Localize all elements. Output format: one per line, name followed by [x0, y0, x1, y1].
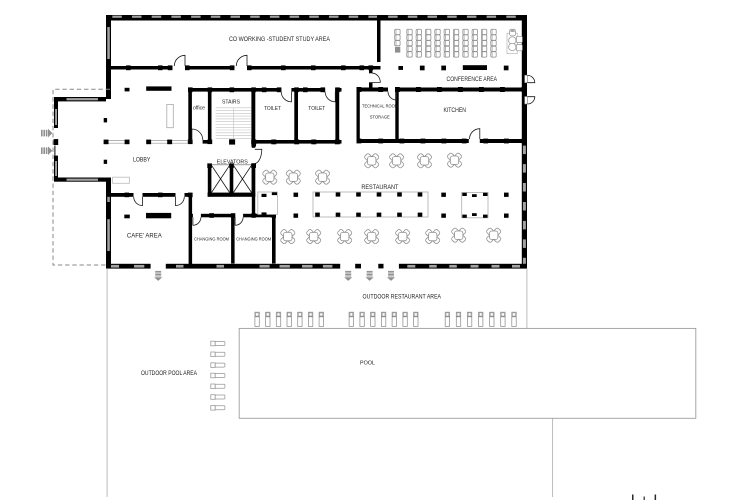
svg-text:CONFERENCE AREA: CONFERENCE AREA	[447, 76, 498, 83]
svg-text:OUTDOOR POOL AREA: OUTDOOR POOL AREA	[141, 371, 197, 377]
svg-text:CAFE' AREA: CAFE' AREA	[127, 234, 162, 240]
svg-text:TOILET: TOILET	[308, 106, 326, 112]
svg-text:RESTAURANT: RESTAURANT	[361, 184, 398, 191]
svg-text:TECHNICAL ROOM: TECHNICAL ROOM	[362, 104, 398, 110]
svg-text:POOL: POOL	[360, 360, 375, 366]
svg-text:LOBBY: LOBBY	[133, 158, 151, 164]
svg-text:CHANGING ROOM: CHANGING ROOM	[236, 237, 271, 242]
svg-text:CO WORKING -STUDENT STUDY AREA: CO WORKING -STUDENT STUDY AREA	[229, 36, 331, 43]
svg-text:ELEVATORS: ELEVATORS	[217, 159, 248, 165]
svg-text:KITCHEN: KITCHEN	[443, 108, 466, 114]
svg-text:STAIRS: STAIRS	[222, 99, 240, 105]
svg-text:OUTDOOR RESTAURANT AREA: OUTDOOR RESTAURANT AREA	[363, 294, 442, 300]
svg-text:office: office	[193, 106, 205, 112]
svg-text:STORAGE: STORAGE	[370, 114, 391, 120]
svg-text:CHANGING ROOM: CHANGING ROOM	[194, 237, 229, 242]
svg-text:TOILET: TOILET	[264, 106, 282, 112]
